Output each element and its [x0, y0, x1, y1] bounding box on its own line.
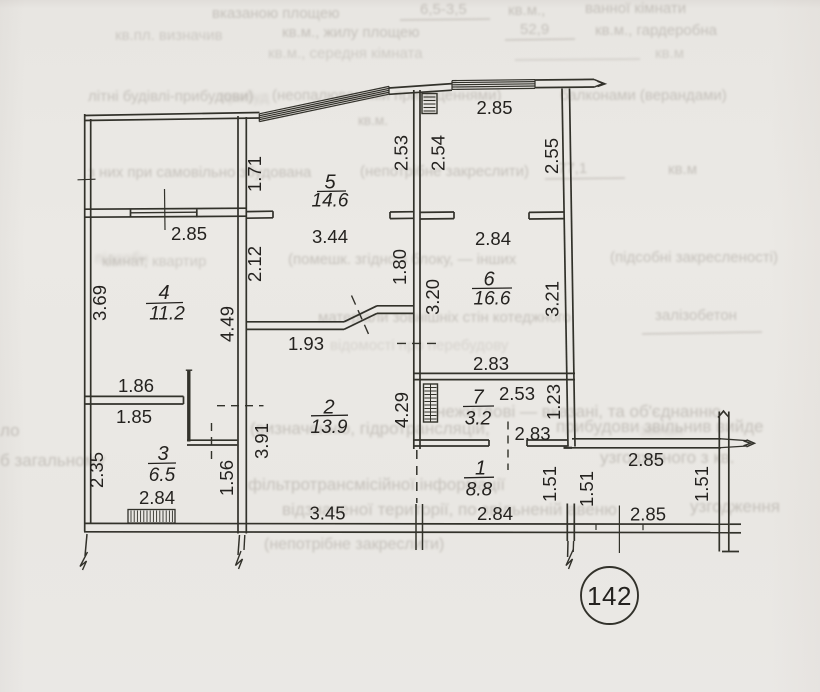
- svg-text:узгодженого з кв.: узгодженого з кв.: [600, 448, 735, 467]
- svg-text:7: 7: [472, 387, 484, 409]
- svg-text:2.85: 2.85: [628, 449, 664, 470]
- svg-text:2.54: 2.54: [427, 135, 448, 171]
- svg-text:1.23: 1.23: [543, 384, 564, 420]
- svg-text:залізобетон: залізобетон: [655, 307, 737, 324]
- svg-text:1.80: 1.80: [389, 249, 410, 285]
- svg-text:3.21: 3.21: [542, 281, 563, 317]
- svg-text:13.9: 13.9: [311, 417, 348, 438]
- svg-text:2.35: 2.35: [86, 452, 107, 488]
- svg-text:2.83: 2.83: [514, 423, 550, 444]
- svg-text:77,1: 77,1: [558, 160, 587, 177]
- svg-text:(непотрібне закреслити): (непотрібне закреслити): [264, 536, 444, 553]
- svg-text:3.2: 3.2: [465, 409, 492, 430]
- svg-text:1.56: 1.56: [216, 460, 237, 496]
- svg-text:1.85: 1.85: [116, 406, 152, 427]
- svg-text:16.6: 16.6: [474, 289, 511, 310]
- svg-text:кв.пл. визначив: кв.пл. визначив: [115, 27, 223, 44]
- svg-text:4: 4: [158, 282, 169, 304]
- svg-text:підсобн: підсобн: [95, 250, 148, 267]
- svg-text:3.44: 3.44: [312, 226, 348, 247]
- svg-text:3.69: 3.69: [89, 285, 110, 321]
- svg-text:2.12: 2.12: [244, 246, 265, 282]
- svg-text:6: 6: [483, 269, 495, 291]
- svg-text:4.29: 4.29: [391, 392, 412, 428]
- svg-text:1.93: 1.93: [288, 333, 324, 354]
- svg-text:кв.м: кв.м: [655, 45, 684, 62]
- svg-text:балконами (верандами): балконами (верандами): [560, 87, 727, 104]
- svg-text:прибуд: прибуд: [220, 89, 269, 106]
- svg-text:2.85: 2.85: [630, 504, 666, 525]
- svg-text:1.51: 1.51: [691, 466, 712, 502]
- svg-text:кв.м.: кв.м.: [358, 113, 388, 128]
- svg-text:52,9: 52,9: [520, 21, 549, 38]
- svg-text:кв.м., середня кімната: кв.м., середня кімната: [268, 45, 423, 62]
- svg-text:вказаною площею: вказаною площею: [212, 5, 339, 22]
- svg-text:2.85: 2.85: [476, 97, 512, 118]
- svg-text:8.8: 8.8: [466, 480, 493, 501]
- svg-text:4.49: 4.49: [216, 306, 237, 342]
- svg-text:2.85: 2.85: [171, 223, 207, 244]
- svg-text:2.84: 2.84: [477, 503, 513, 524]
- svg-text:кв.м: кв.м: [668, 161, 697, 178]
- svg-text:ло: ло: [0, 421, 20, 440]
- svg-text:3: 3: [157, 443, 168, 465]
- svg-text:(визначенню, гідротрансляцій: (визначенню, гідротрансляцій,: [250, 419, 490, 438]
- svg-text:2.84: 2.84: [139, 487, 175, 508]
- svg-text:1: 1: [475, 458, 486, 480]
- svg-text:1.86: 1.86: [118, 375, 154, 396]
- svg-text:142: 142: [587, 581, 632, 611]
- svg-text:1.51: 1.51: [576, 471, 597, 507]
- svg-text:1.71: 1.71: [244, 156, 265, 192]
- svg-text:звільн: звільн: [640, 422, 683, 439]
- svg-text:3.91: 3.91: [251, 423, 272, 459]
- svg-text:кв.м., жилу площею: кв.м., жилу площею: [282, 24, 420, 41]
- svg-text:кв.м., гардеробна: кв.м., гардеробна: [595, 22, 718, 39]
- svg-text:6,5-3,5: 6,5-3,5: [420, 1, 467, 18]
- svg-text:3.20: 3.20: [422, 279, 443, 315]
- svg-text:2.84: 2.84: [475, 228, 511, 249]
- svg-text:11.2: 11.2: [149, 304, 185, 325]
- svg-text:1.51: 1.51: [539, 466, 560, 502]
- svg-text:ванної кімнати: ванної кімнати: [585, 0, 686, 17]
- svg-text:2.53: 2.53: [390, 135, 411, 171]
- svg-text:кв.м.,: кв.м.,: [508, 2, 545, 19]
- svg-text:3.45: 3.45: [309, 503, 345, 524]
- svg-text:з них при самовільно збудо: з них при самовільно збудована: [88, 164, 312, 181]
- svg-text:14.6: 14.6: [312, 191, 349, 212]
- svg-text:(підсобні закресленості): (підсобні закресленості): [610, 249, 778, 266]
- svg-text:2.53: 2.53: [499, 383, 535, 404]
- svg-text:2.83: 2.83: [473, 353, 509, 374]
- svg-text:2.55: 2.55: [541, 138, 562, 174]
- svg-text:6.5: 6.5: [149, 465, 176, 486]
